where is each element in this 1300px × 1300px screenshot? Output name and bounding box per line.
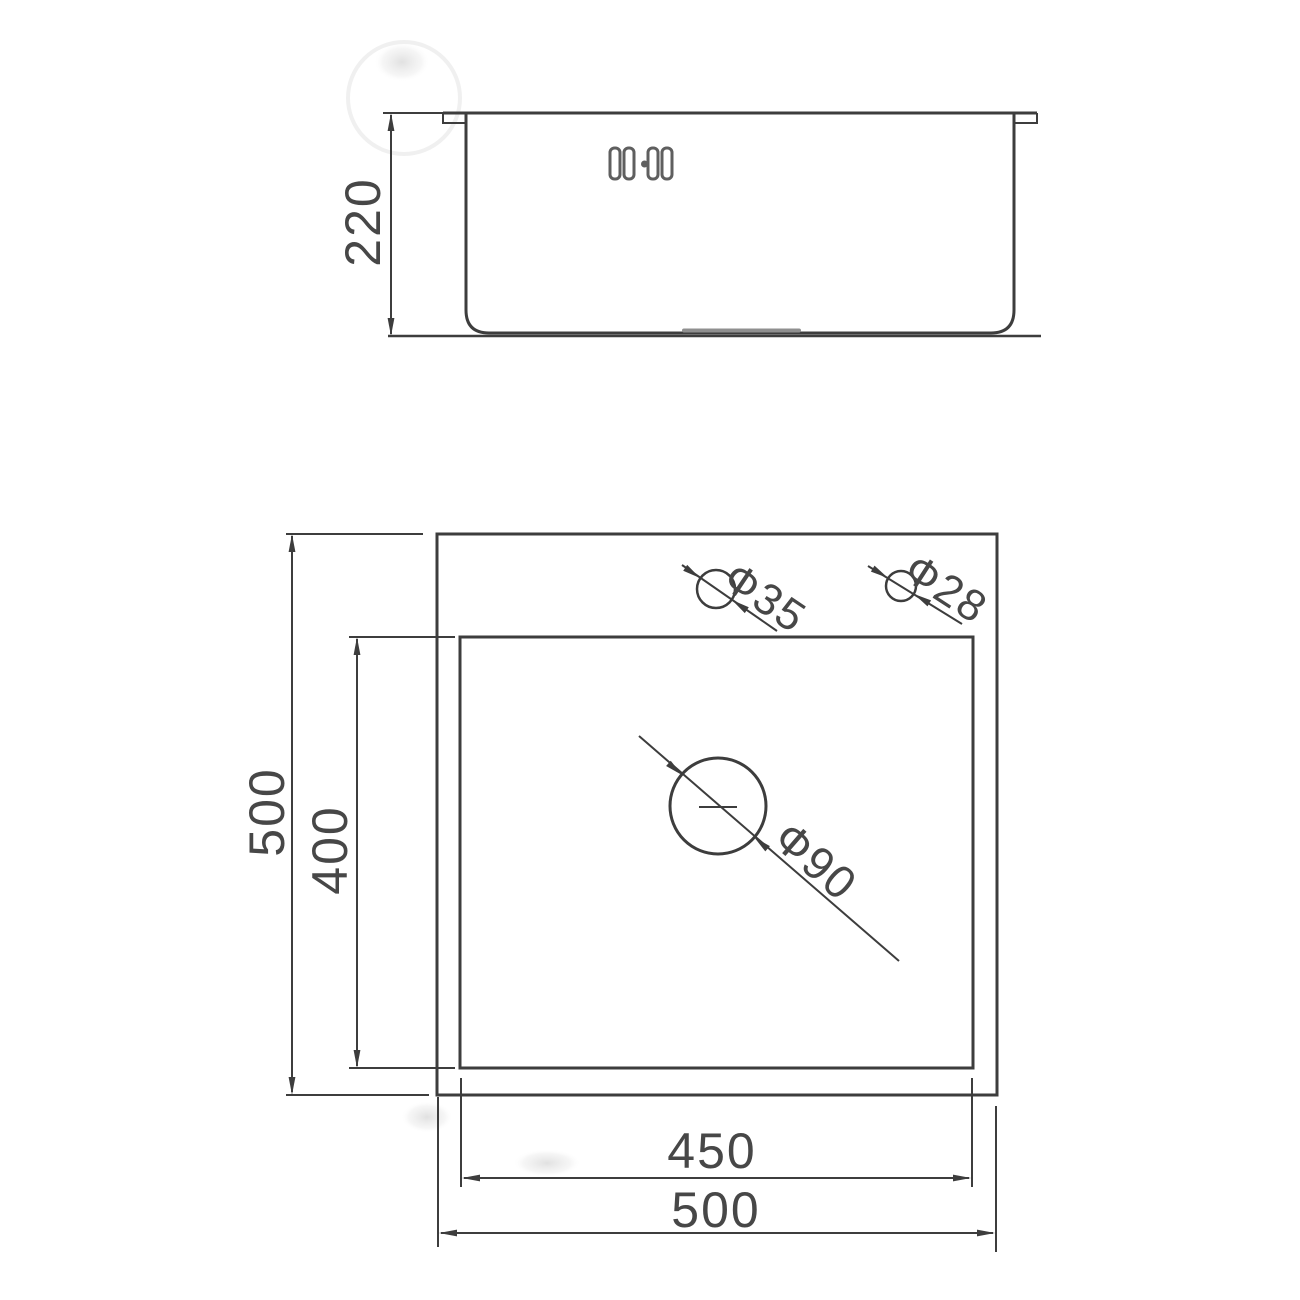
side-view: 220 bbox=[335, 113, 1041, 336]
plan-inner-depth-dimension-label: 400 bbox=[302, 805, 358, 894]
outer-rim-outline bbox=[437, 534, 997, 1095]
height-dimension-220: 220 bbox=[335, 113, 443, 336]
arrowhead bbox=[871, 566, 888, 578]
sink-dimension-drawing: 220 500 400 bbox=[0, 0, 1300, 1300]
watermark-smudge bbox=[401, 1101, 453, 1133]
arrowhead-up bbox=[289, 534, 296, 552]
arrowhead-left bbox=[439, 1230, 457, 1237]
hole-diameter-35: Ф35 bbox=[682, 553, 815, 643]
hole-diameter-90: Ф90 bbox=[639, 736, 899, 961]
arrowhead bbox=[666, 761, 682, 775]
arrowhead-up bbox=[354, 637, 361, 655]
arrowhead-down bbox=[354, 1050, 361, 1068]
hole-diameter-90-label: Ф90 bbox=[764, 811, 868, 911]
plan-inner-width-dimension-label: 450 bbox=[667, 1123, 756, 1179]
hole-diameter-28: Ф28 bbox=[868, 544, 996, 633]
arrowhead-down bbox=[388, 318, 395, 336]
plan-outer-height-dimension-label: 500 bbox=[239, 767, 295, 856]
arrowhead-up bbox=[388, 113, 395, 131]
sink-bowl-outline bbox=[466, 114, 1014, 333]
arrowhead-right bbox=[953, 1175, 971, 1182]
faucet-holes-logo-icon bbox=[610, 148, 672, 179]
side-height-dimension-label: 220 bbox=[335, 177, 391, 266]
logo-bar bbox=[662, 148, 672, 179]
plan-outer-width-dimension-label: 500 bbox=[671, 1182, 760, 1238]
watermark-smudge bbox=[374, 42, 430, 82]
hole-diameter-35-label: Ф35 bbox=[715, 553, 816, 643]
logo-bar bbox=[610, 148, 620, 179]
arrowhead-down bbox=[289, 1077, 296, 1095]
arrowhead-left bbox=[462, 1175, 480, 1182]
arrowhead-right bbox=[977, 1230, 995, 1237]
logo-bar bbox=[624, 148, 634, 179]
inner-depth-dimension-400: 400 bbox=[302, 637, 455, 1068]
plan-view: 500 400 450 500 bbox=[239, 534, 997, 1252]
hole-diameter-28-label: Ф28 bbox=[896, 544, 997, 633]
watermark-smudge bbox=[513, 1149, 581, 1177]
logo-bar bbox=[648, 148, 658, 179]
drawing-canvas: 220 500 400 bbox=[0, 0, 1300, 1300]
